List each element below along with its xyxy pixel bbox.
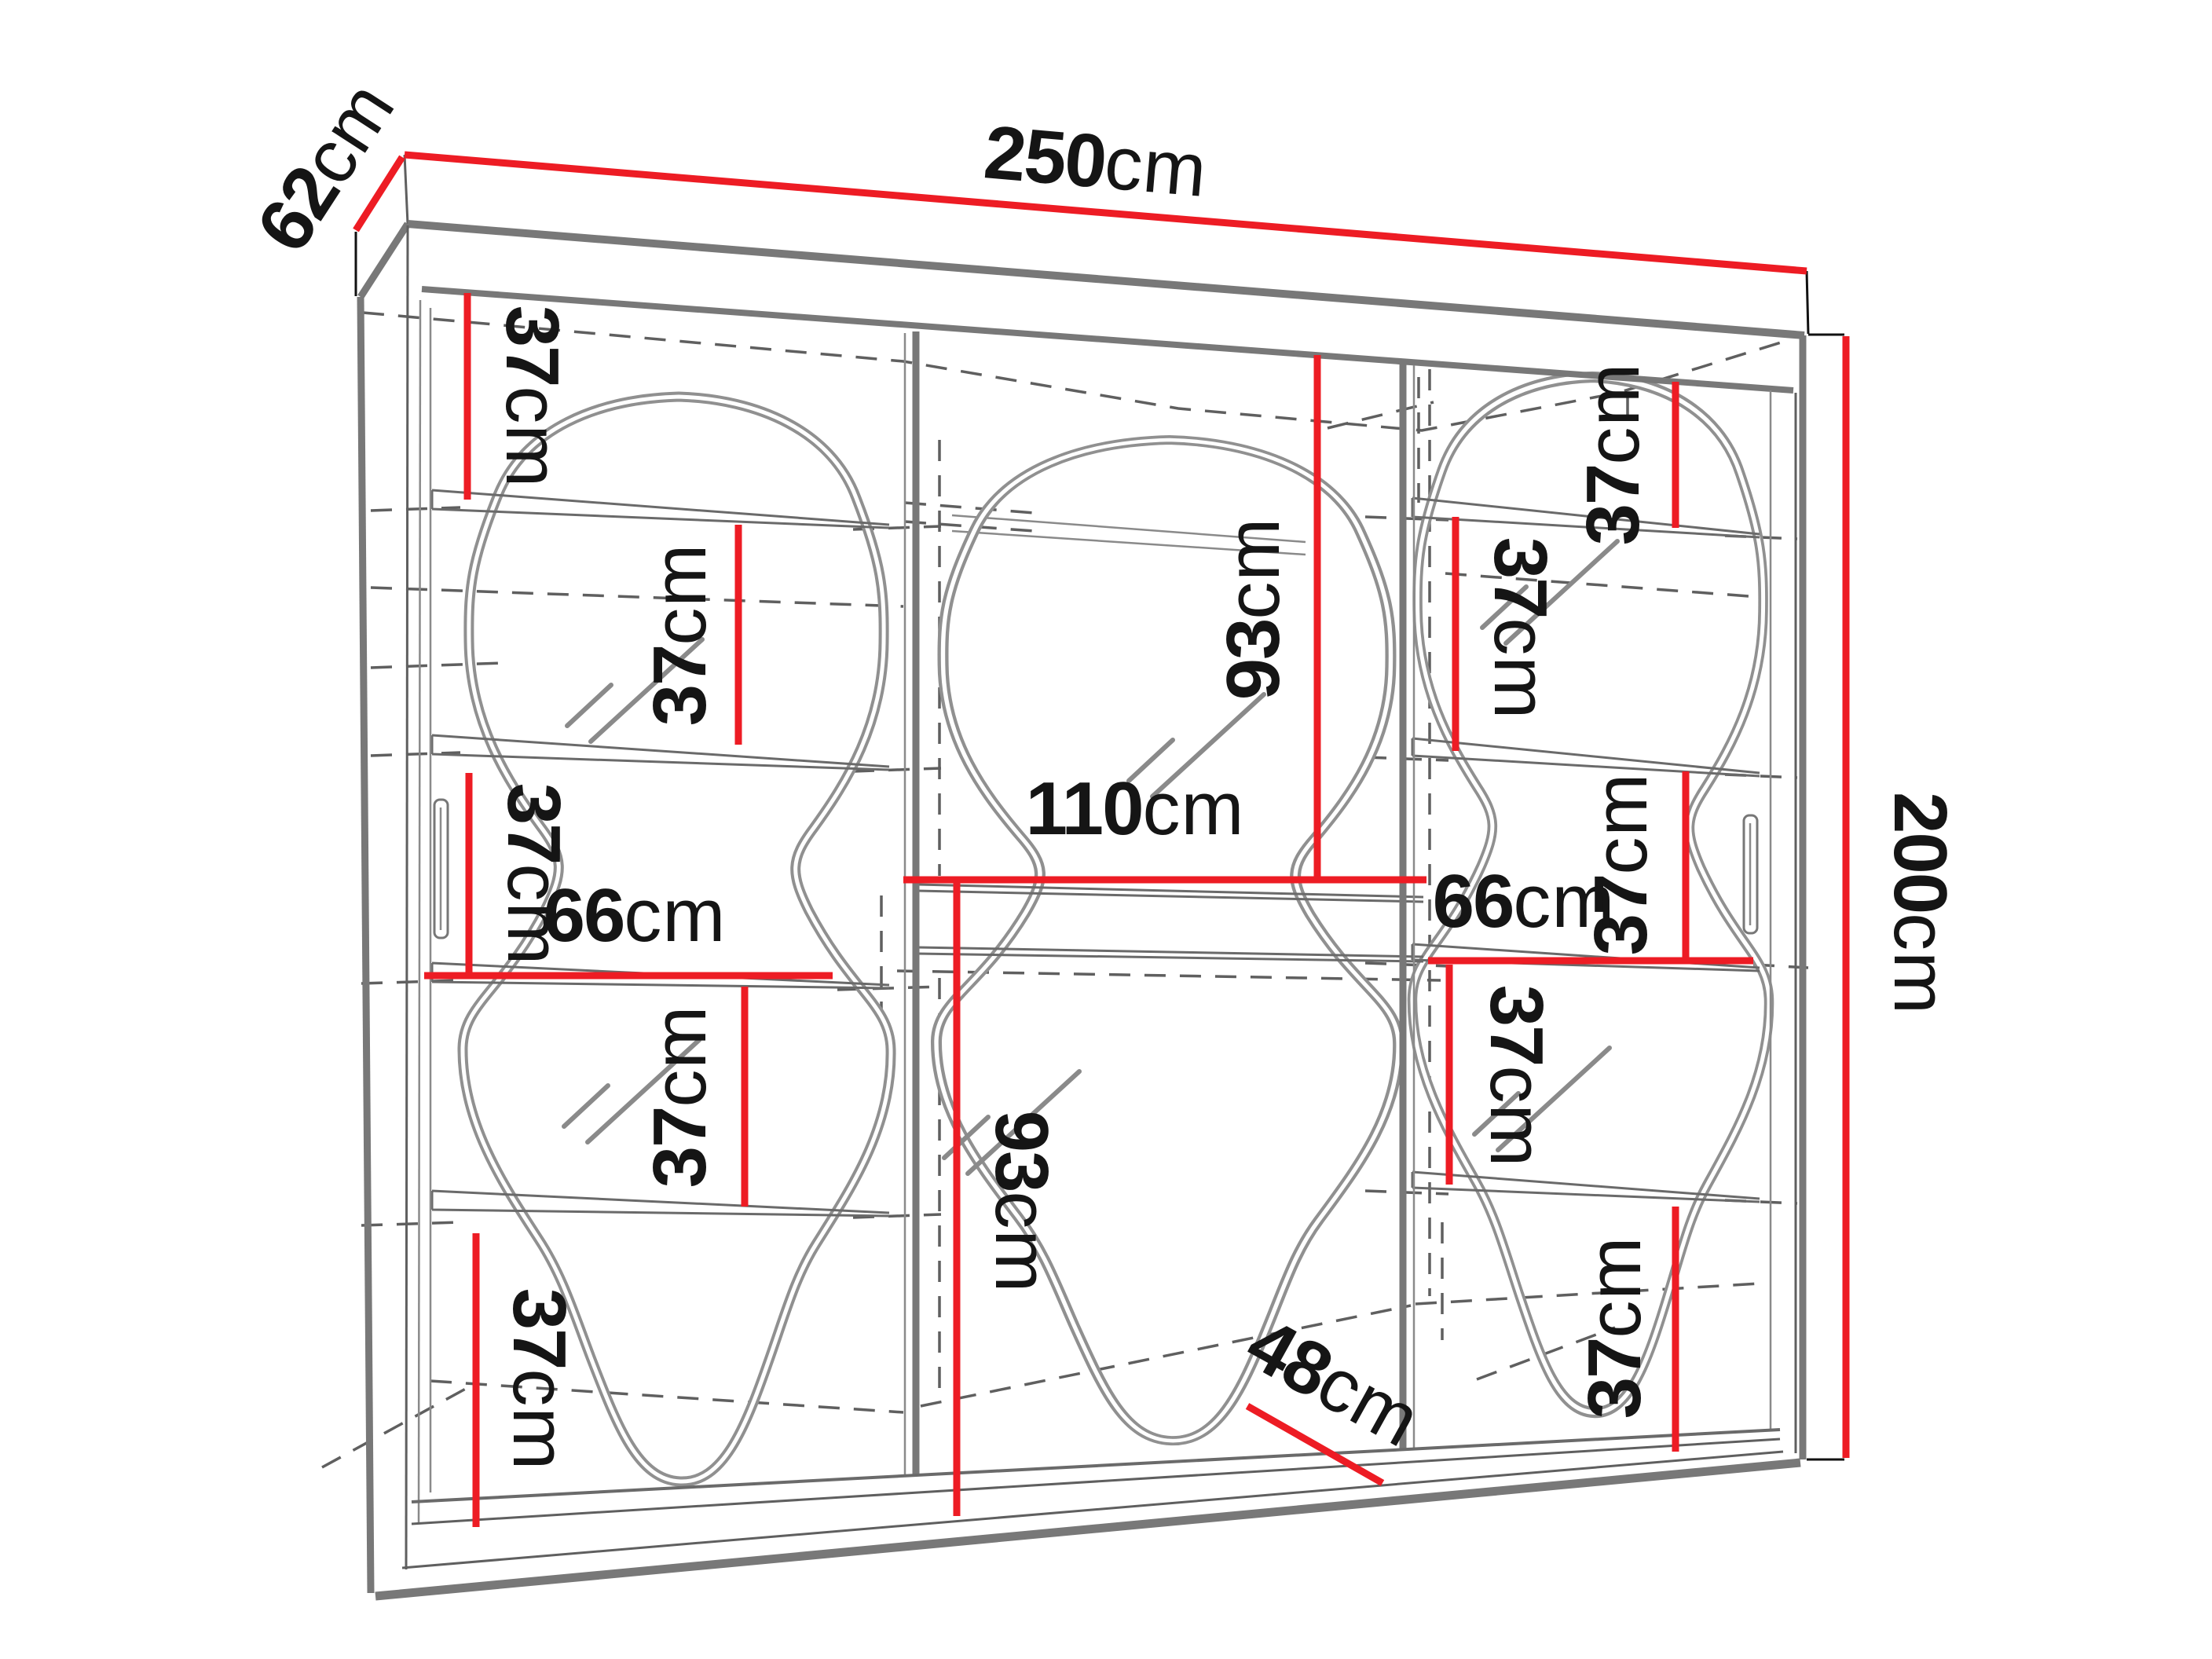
left-door-handle xyxy=(434,800,448,938)
dim-label-left-37-1: 37cm xyxy=(490,306,574,489)
dim-label-overall-width: 250cm xyxy=(981,110,1210,213)
dim-label-right-37-5: 37cm xyxy=(1573,1236,1657,1419)
dim-label-right-37-2: 37cm xyxy=(1478,537,1562,720)
dim-label-middle-110: 110cm xyxy=(1026,767,1245,851)
dim-label-middle-93-bottom: 93cm xyxy=(980,1111,1064,1294)
dim-label-left-37-4: 37cm xyxy=(638,1005,722,1188)
dim-label-overall-depth: 62cm xyxy=(240,68,411,266)
mirror-shine-marks xyxy=(564,541,1617,1174)
right-door-handle xyxy=(1744,815,1757,933)
dim-label-overall-height: 200cm xyxy=(1878,792,1962,1015)
dim-label-left-66: 66cm xyxy=(544,873,727,958)
middle-divider-panel xyxy=(917,884,1423,961)
dim-label-right-37-1: 37cm xyxy=(1571,363,1655,546)
wardrobe-dimension-diagram: 250cm 62cm 200cm 37cm 37cm 37cm 66cm 37c… xyxy=(0,0,2212,1659)
dim-label-left-37-2: 37cm xyxy=(638,544,722,727)
dim-label-left-37-5: 37cm xyxy=(497,1288,581,1471)
dim-label-right-37-4: 37cm xyxy=(1474,985,1558,1168)
dim-label-middle-93-top: 93cm xyxy=(1211,518,1295,701)
diagram-canvas: 250cm 62cm 200cm 37cm 37cm 37cm 66cm 37c… xyxy=(0,0,2212,1659)
dim-label-right-66: 66cm xyxy=(1433,859,1616,943)
